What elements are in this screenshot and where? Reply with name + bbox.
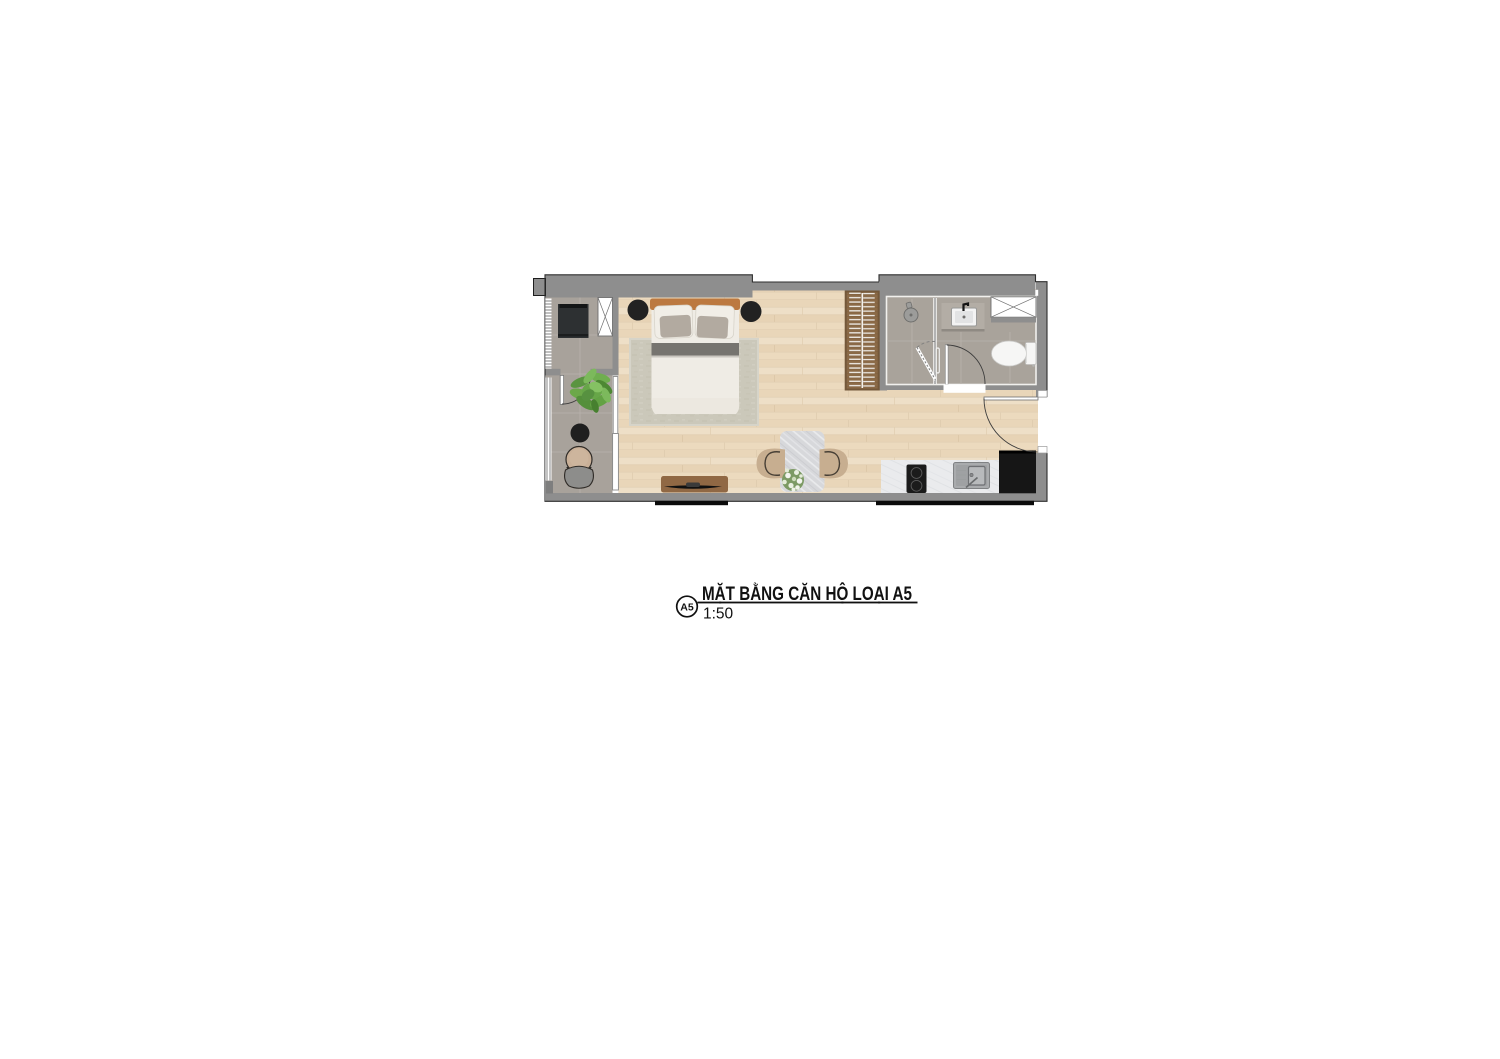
svg-text:1:50: 1:50 <box>703 606 734 623</box>
svg-text:A5: A5 <box>680 602 694 613</box>
